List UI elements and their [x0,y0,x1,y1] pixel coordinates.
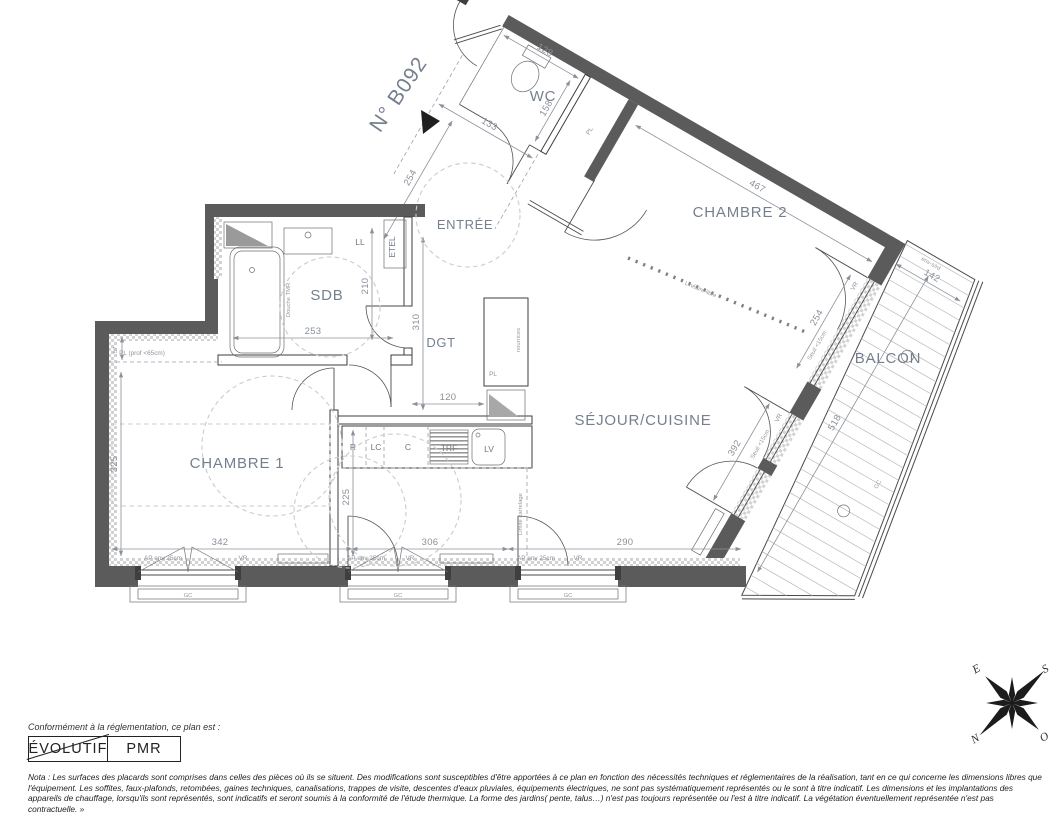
vr-w3: VR [574,555,583,562]
legend-pmr-label: PMR [126,741,161,757]
legend-boxes: ÉVOLUTIF PMR [28,736,181,762]
vr-w1: VR [239,555,248,562]
floor-plan-canvas: 128 158 PL 254 VR Seuil <15cm 467 [0,0,1056,800]
room-label-entree: ENTRÉE [437,217,493,232]
legend-pmr-box: PMR [108,736,181,762]
room-label-sdb: SDB [310,287,343,304]
room-label-balcon: BALCON [855,350,922,367]
room-label-sejour: SÉJOUR/CUISINE [574,412,711,429]
ll-label: LL [355,237,365,247]
dim-placard-depth: 57 [113,347,119,354]
etel-label: ETEL [387,236,397,258]
dim-facade-mid: 306 [422,537,439,548]
dim-chambre1-depth: 325 [109,456,120,473]
gc-w3: GC [564,593,574,599]
gc-w2: GC [394,593,404,599]
nourrices-label: nourrices [516,328,522,352]
dim-sdb-depth: 210 [360,278,371,295]
room-label-chambre2: CHAMBRE 2 [693,204,788,221]
dim-chambre1-width: 342 [212,537,229,548]
gc-w1: GC [184,593,194,599]
douche-label: Douche TMR [286,283,292,318]
pl-dgt-label: PL [489,371,497,378]
kitchen-c-label: C [405,442,411,452]
kitchen-lc-label: LC [371,442,382,452]
vr-w2: VR [406,555,415,562]
room-label-chambre1: CHAMBRE 1 [190,455,285,472]
compass-rose-icon [976,667,1047,738]
ap-w1: AP env 25cm [144,555,182,562]
dim-sdb-width: 253 [305,326,322,337]
limite-carrelage-label: Limite carrelage [518,492,524,535]
room-label-wc: WC [530,88,557,105]
room-label-dgt: DGT [426,335,455,350]
dim-dgt-width: 120 [440,392,457,403]
dim-dgt-length: 310 [411,314,422,331]
pl-prof-label: PL (prof <65cm) [119,350,165,357]
dim-cuisine-depth: 225 [341,489,352,506]
ap-w2: AP env 25cm [347,555,385,562]
legend-evolutif-box: ÉVOLUTIF [28,736,108,762]
ap-w3: AP env 25cm [517,555,555,562]
nota-paragraph: Nota : Les surfaces des placards sont co… [28,772,1042,814]
legend-intro: Conformément à la réglementation, ce pla… [28,722,220,732]
kitchen-lv-label: LV [484,444,494,454]
dim-facade-right: 290 [617,537,634,548]
kitchen-trf-label: TRF [441,443,458,453]
